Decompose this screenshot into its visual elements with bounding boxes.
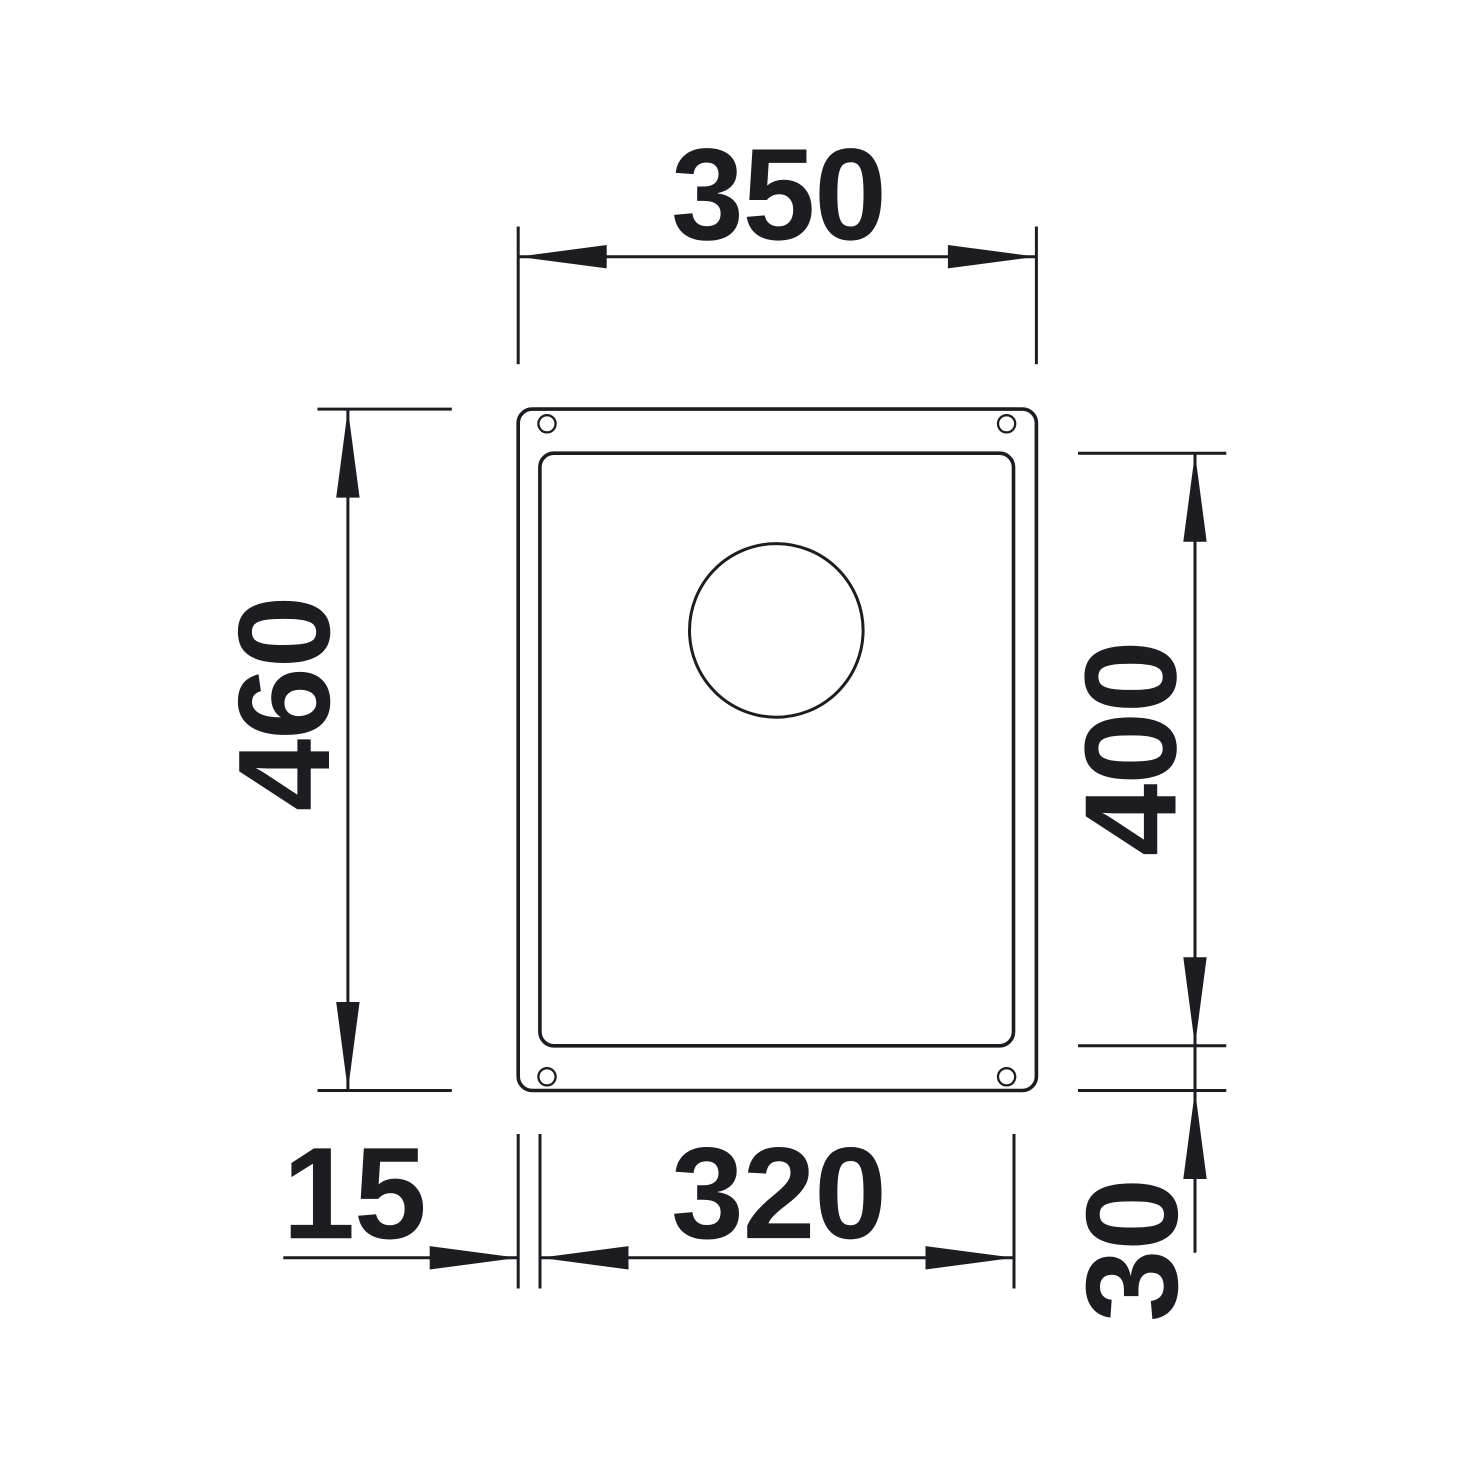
svg-text:30: 30 [1059,1179,1205,1322]
svg-text:350: 350 [671,121,886,267]
svg-text:460: 460 [211,597,357,812]
svg-text:320: 320 [671,1120,886,1266]
svg-text:15: 15 [283,1120,426,1266]
svg-text:400: 400 [1058,641,1204,856]
